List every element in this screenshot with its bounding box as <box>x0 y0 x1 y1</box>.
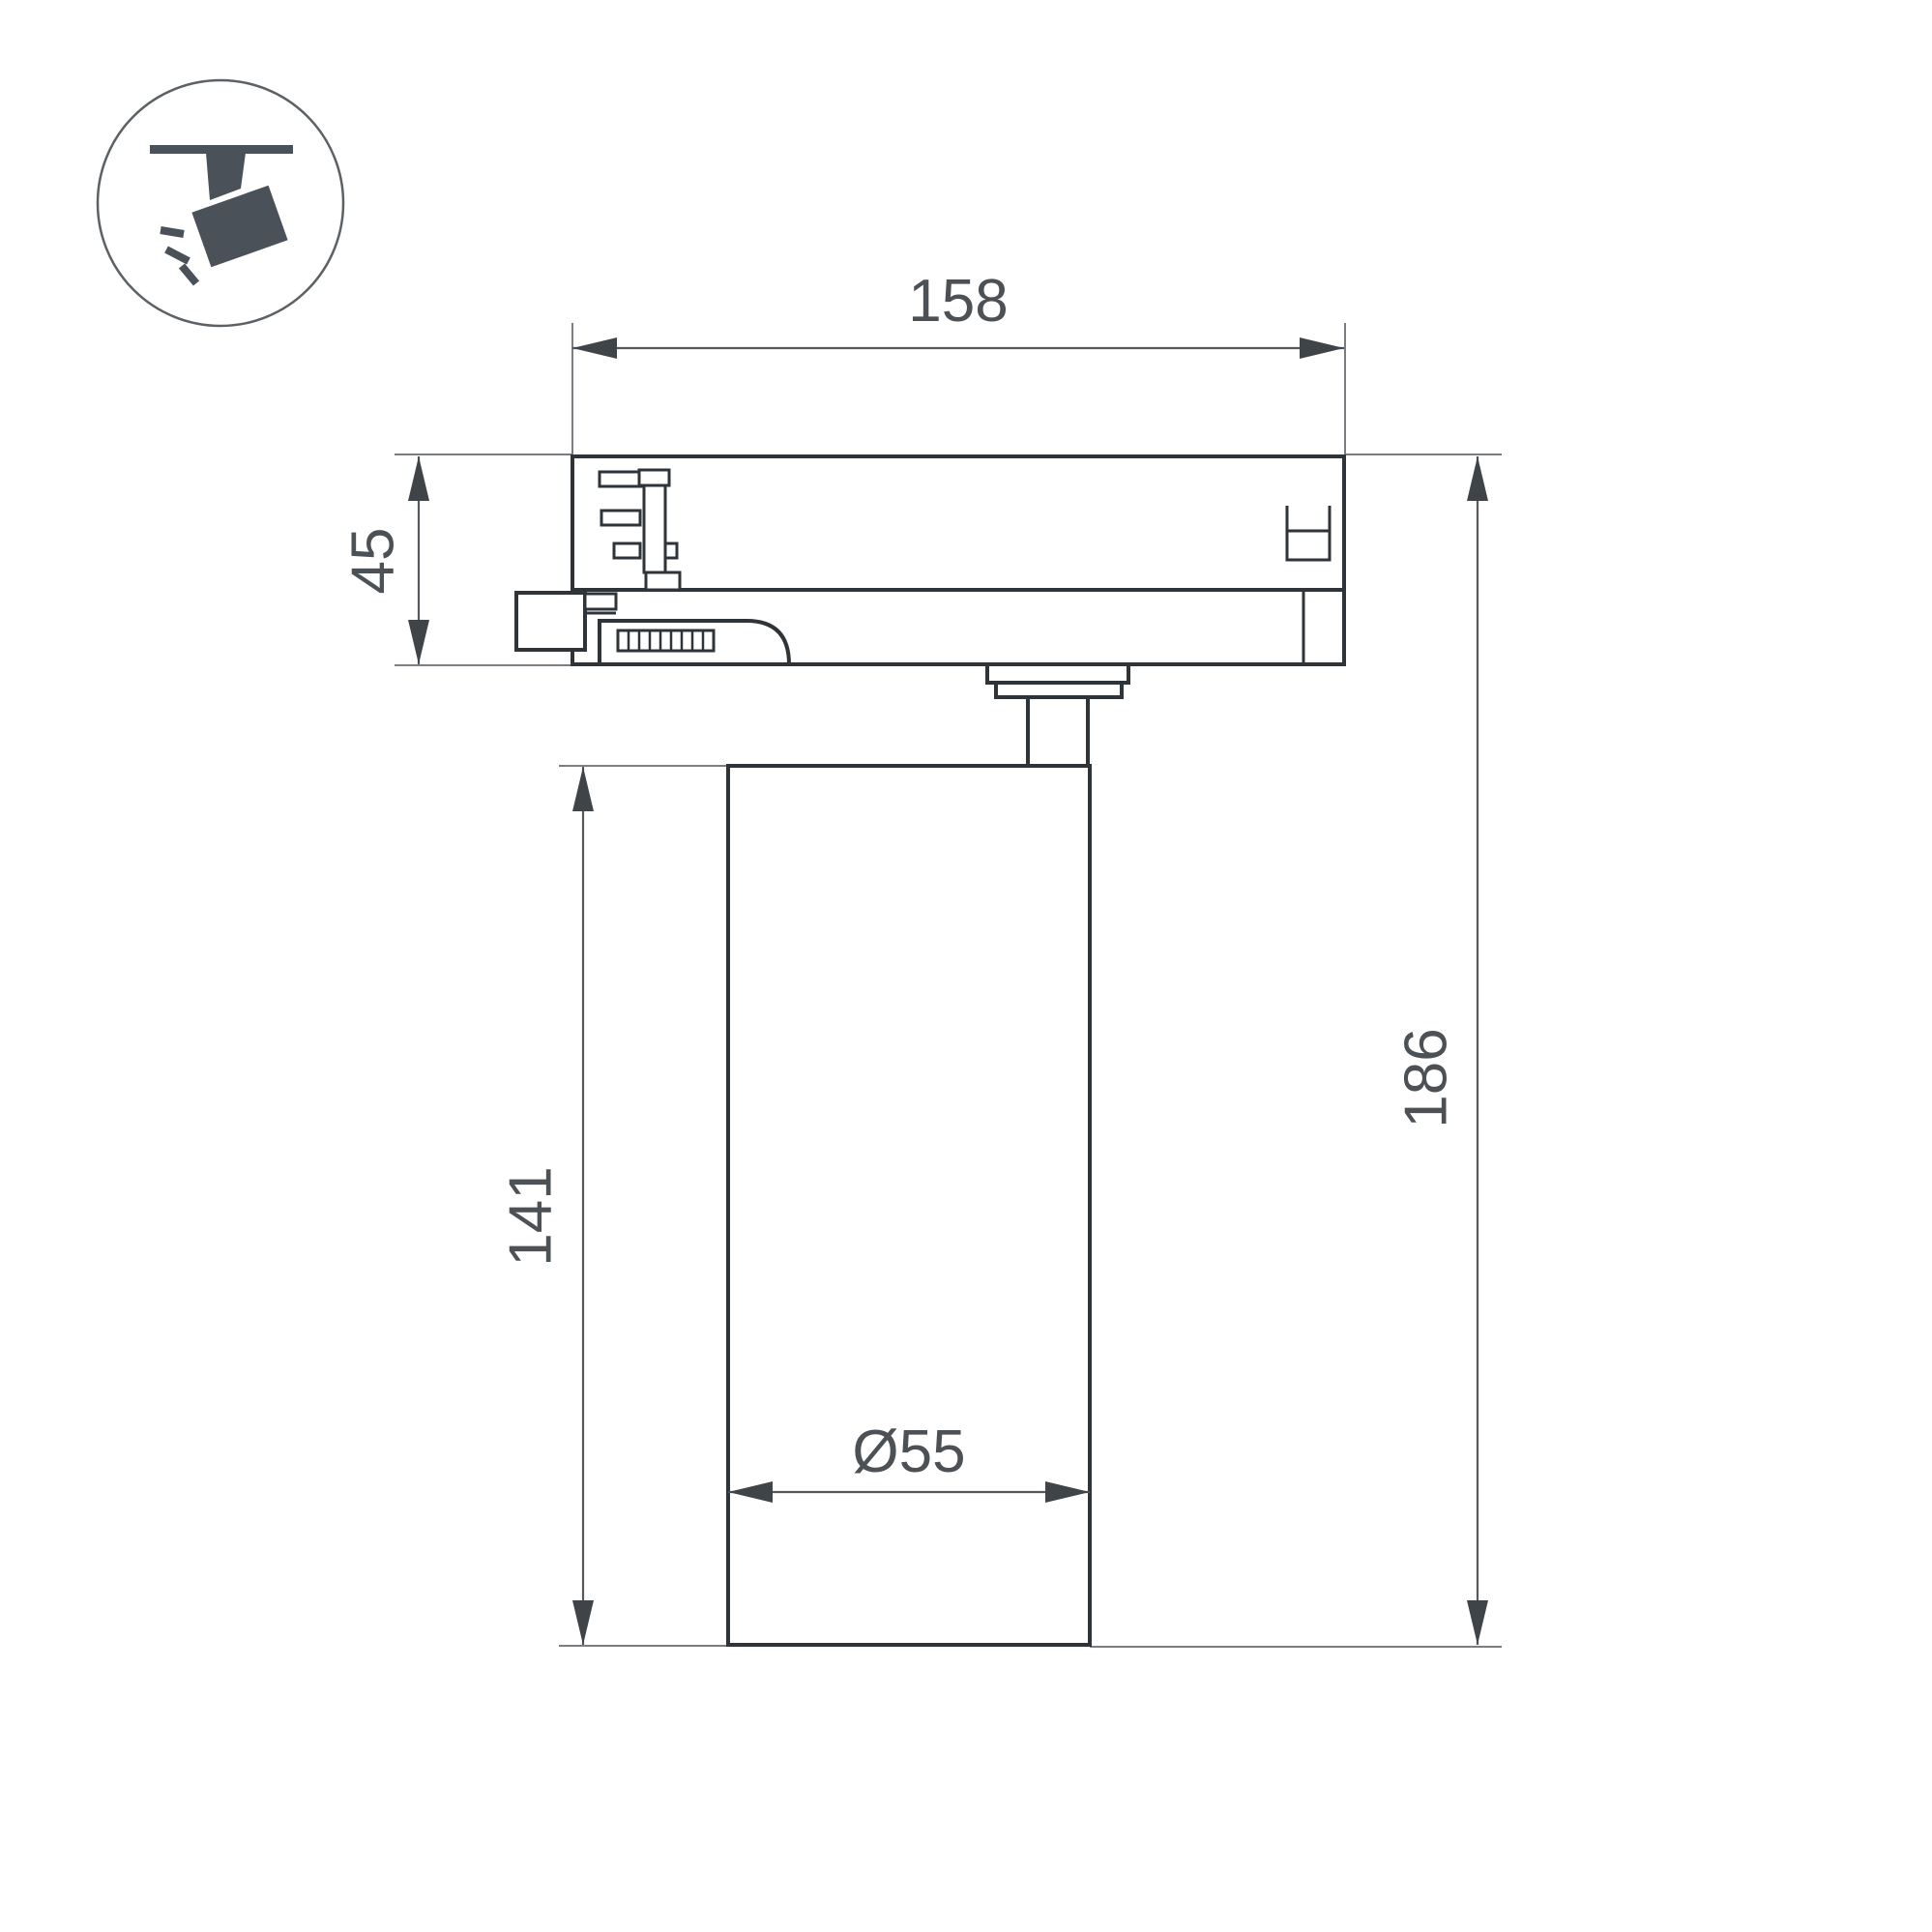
dim-55-label: Ø55 <box>852 1419 965 1485</box>
dim-186-arrow-bottom <box>1467 1600 1488 1645</box>
swivel-joint <box>987 664 1128 767</box>
latch-tab <box>585 594 616 609</box>
dim-158-arrow-right <box>1300 337 1344 359</box>
dim-141-arrow-top <box>572 767 594 811</box>
contact-prong-2 <box>601 511 640 525</box>
adapter-ribbed-plate <box>600 621 789 664</box>
contact-prong-3 <box>614 543 640 558</box>
dim-186-label: 186 <box>1393 1028 1460 1127</box>
contact-post <box>644 485 665 572</box>
contact-prong-1 <box>600 472 641 486</box>
icon-light-ray-1 <box>161 230 184 234</box>
swivel-step-2 <box>996 683 1122 697</box>
icon-track-bar <box>150 145 293 154</box>
dimension-total-height: 186 <box>1393 456 1488 1645</box>
lamp-body <box>728 766 1090 1645</box>
dimension-adapter-height: 45 <box>340 456 429 664</box>
contact-foot <box>646 572 680 590</box>
dim-186-arrow-top <box>1467 456 1488 501</box>
swivel-step-1 <box>987 664 1128 683</box>
track-adapter <box>516 456 1344 664</box>
dim-45-arrow-bottom <box>408 620 429 664</box>
dim-158-label: 158 <box>908 268 1008 335</box>
dimension-track-length: 158 <box>572 268 1344 359</box>
contact-right-tab <box>665 543 677 558</box>
latch-block <box>516 593 585 650</box>
dim-141-label: 141 <box>498 1166 565 1266</box>
dimension-body-height: 141 <box>498 767 594 1645</box>
contact-cap <box>639 470 669 485</box>
swivel-stem <box>1028 697 1088 767</box>
track-spotlight-icon <box>98 80 343 326</box>
dim-45-label: 45 <box>340 528 407 595</box>
adapter-upper-housing <box>572 456 1344 590</box>
dim-158-arrow-left <box>572 337 617 359</box>
dim-45-arrow-top <box>408 456 429 501</box>
dimension-drawing: 158 45 141 186 Ø55 <box>0 0 1932 1932</box>
dim-141-arrow-bottom <box>572 1600 594 1645</box>
